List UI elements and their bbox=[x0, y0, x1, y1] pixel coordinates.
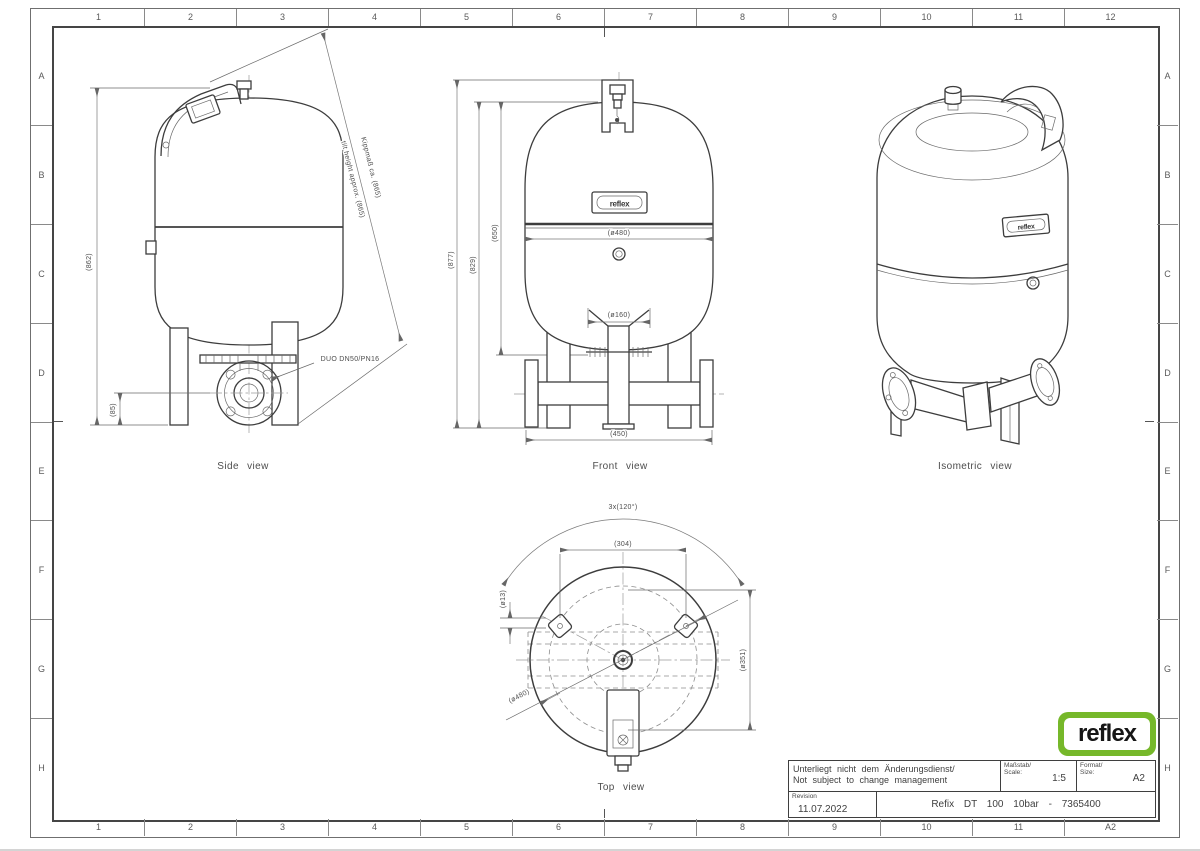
top-view-drawing: 3x(120°) (304) (ø13) (ø480) (ø351) bbox=[480, 492, 790, 814]
top-dim-hole: (ø13) bbox=[500, 590, 507, 608]
side-mounting-plate bbox=[200, 355, 296, 363]
front-dim-seam: (650) bbox=[492, 224, 499, 242]
svg-text:(304): (304) bbox=[614, 541, 632, 548]
format-value: A2 bbox=[1133, 773, 1145, 784]
side-vessel-body bbox=[155, 98, 343, 345]
caption-side-view: Side view bbox=[217, 461, 268, 472]
front-valve-body bbox=[614, 100, 621, 108]
front-dim-total: (877) bbox=[448, 251, 455, 269]
grid-rows-right: A B C D E F G H bbox=[1157, 27, 1178, 817]
iso-tee bbox=[963, 382, 991, 430]
iso-vessel-body bbox=[877, 96, 1068, 383]
caption-front-view: Front view bbox=[592, 461, 647, 472]
revision-date: 11.07.2022 bbox=[798, 804, 873, 815]
caption-isometric-view: Isometric view bbox=[938, 461, 1012, 472]
title-block-scale: Maßstab/ Scale: 1:5 bbox=[1001, 761, 1077, 791]
front-dim-dia-small: (ø160) bbox=[608, 312, 630, 319]
front-nameplate: reflex bbox=[592, 192, 647, 213]
title-block-note: Unterliegt nicht dem Änderungsdienst/ No… bbox=[789, 761, 1001, 791]
isometric-view-drawing: reflex bbox=[855, 78, 1115, 470]
grid-columns-top: 1 2 3 4 5 6 7 8 9 10 11 12 bbox=[53, 9, 1156, 26]
side-dim-height: (862) bbox=[86, 253, 93, 271]
front-dim-feet: (450) bbox=[610, 431, 628, 438]
title-block-part-number: Refix DT 100 10bar - 7365400 bbox=[877, 792, 1155, 817]
front-center-pipe bbox=[608, 326, 629, 424]
top-dim-circle: (ø351) bbox=[740, 649, 747, 671]
title-block-format: Format/ Size: A2 bbox=[1077, 761, 1155, 791]
scale-value: 1:5 bbox=[1052, 773, 1066, 784]
front-dim-vessel: (829) bbox=[470, 256, 477, 274]
side-valve-body bbox=[240, 89, 248, 99]
top-dim-angle: 3x(120°) bbox=[609, 503, 638, 511]
iso-nameplate: reflex bbox=[1002, 214, 1049, 237]
side-nipple bbox=[146, 241, 156, 254]
reflex-logo: reflex bbox=[1058, 712, 1156, 756]
side-leg-front bbox=[170, 328, 188, 425]
svg-text:reflex: reflex bbox=[610, 200, 630, 209]
side-connection-label: DUO DN50/PN16 bbox=[321, 356, 380, 363]
front-duo-flange-left bbox=[525, 360, 538, 427]
side-view-drawing: (862) (85) Kippmaß ca. (865) tilt height… bbox=[60, 25, 420, 470]
top-dim-dia: (ø480) bbox=[508, 688, 531, 705]
drawing-sheet: 1 2 3 4 5 6 7 8 9 10 11 12 1 2 3 4 5 6 7… bbox=[0, 0, 1200, 851]
side-valve-cap bbox=[237, 81, 251, 89]
front-view-drawing: (877) (829) (650) reflex (ø480) bbox=[448, 58, 748, 470]
title-block-revision: Revision 11.07.2022 bbox=[789, 792, 877, 817]
front-duo-flange-right bbox=[700, 360, 713, 427]
iso-pipe-left bbox=[911, 380, 967, 422]
center-mark-right bbox=[1145, 421, 1154, 422]
grid-columns-bottom: 1 2 3 4 5 6 7 8 9 10 11 A2 bbox=[53, 819, 1156, 836]
grid-rows-left: A B C D E F G H bbox=[31, 27, 52, 817]
center-mark-top bbox=[604, 28, 605, 37]
reflex-logo-text: reflex bbox=[1078, 722, 1136, 746]
side-dim-foot: (85) bbox=[110, 403, 117, 417]
front-dim-dia: (ø480) bbox=[608, 230, 630, 237]
top-valve-housing bbox=[607, 690, 639, 771]
caption-top-view: Top view bbox=[597, 782, 644, 793]
front-valve-cap bbox=[610, 85, 625, 94]
title-block: Unterliegt nicht dem Änderungsdienst/ No… bbox=[788, 760, 1156, 818]
